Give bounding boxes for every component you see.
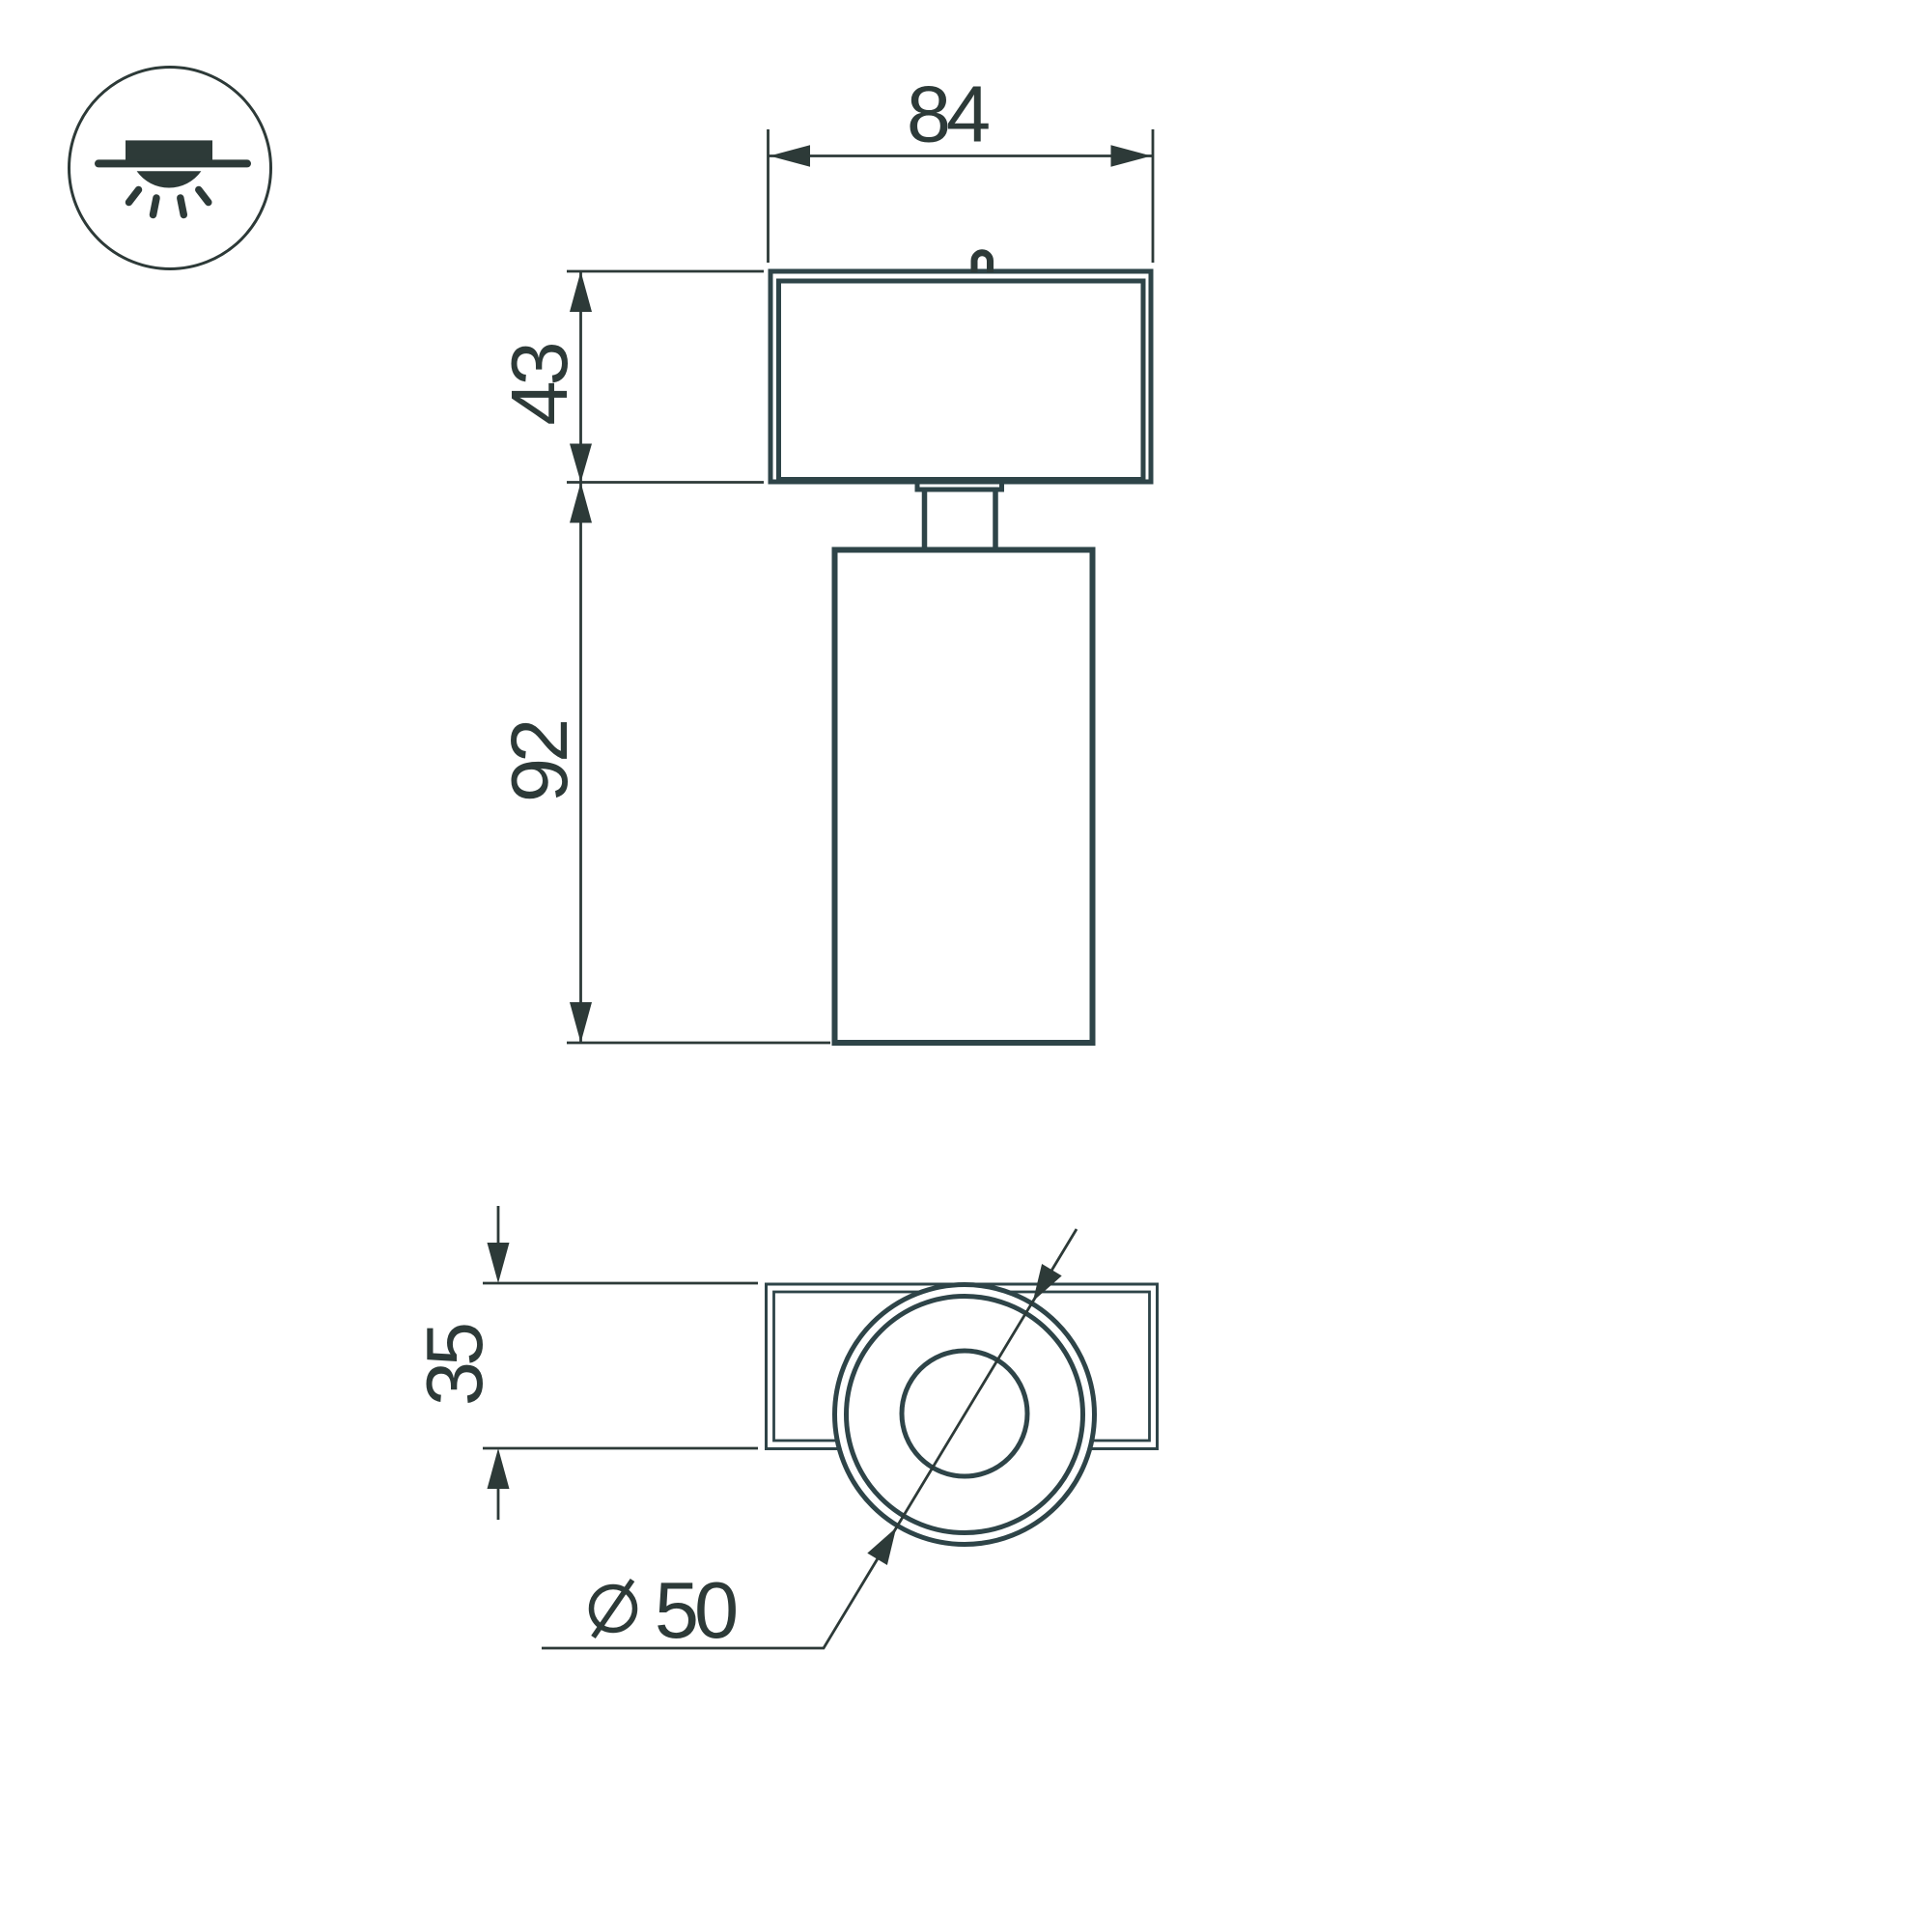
svg-text:84: 84 bbox=[907, 70, 989, 159]
svg-text:92: 92 bbox=[494, 722, 584, 802]
svg-text:50: 50 bbox=[655, 1565, 736, 1655]
svg-text:35: 35 bbox=[409, 1325, 499, 1406]
svg-text:43: 43 bbox=[494, 345, 584, 426]
